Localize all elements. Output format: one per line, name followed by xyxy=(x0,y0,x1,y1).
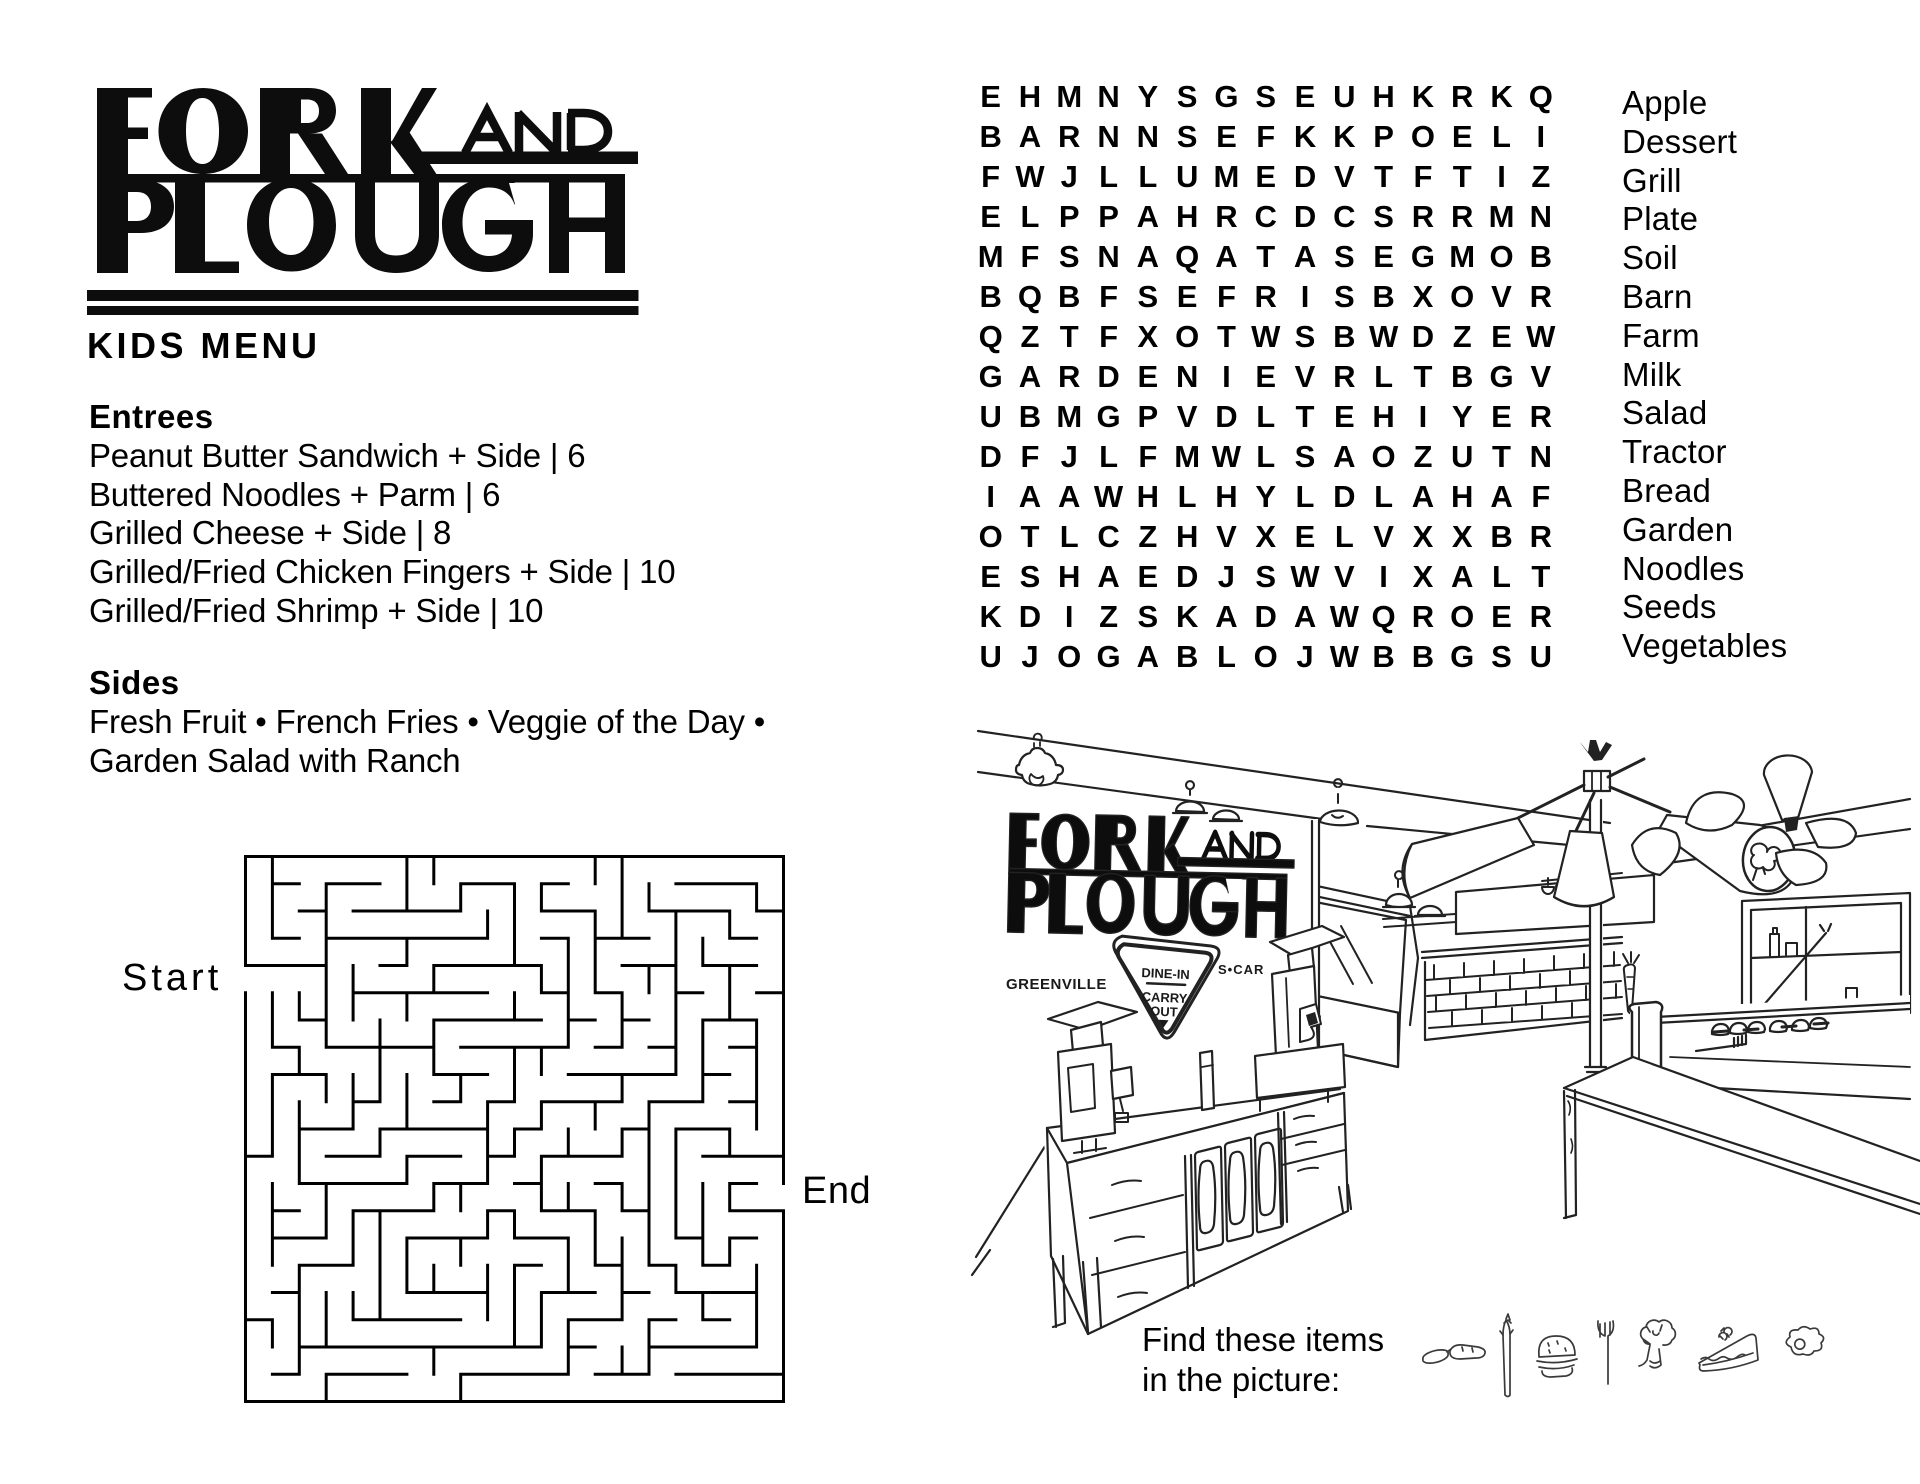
svg-text:GREENVILLE: GREENVILLE xyxy=(1006,976,1107,993)
svg-text:DINE-IN: DINE-IN xyxy=(1141,965,1190,982)
svg-text:OUT: OUT xyxy=(1150,1003,1178,1019)
svg-text:S•CAR: S•CAR xyxy=(1218,962,1264,977)
